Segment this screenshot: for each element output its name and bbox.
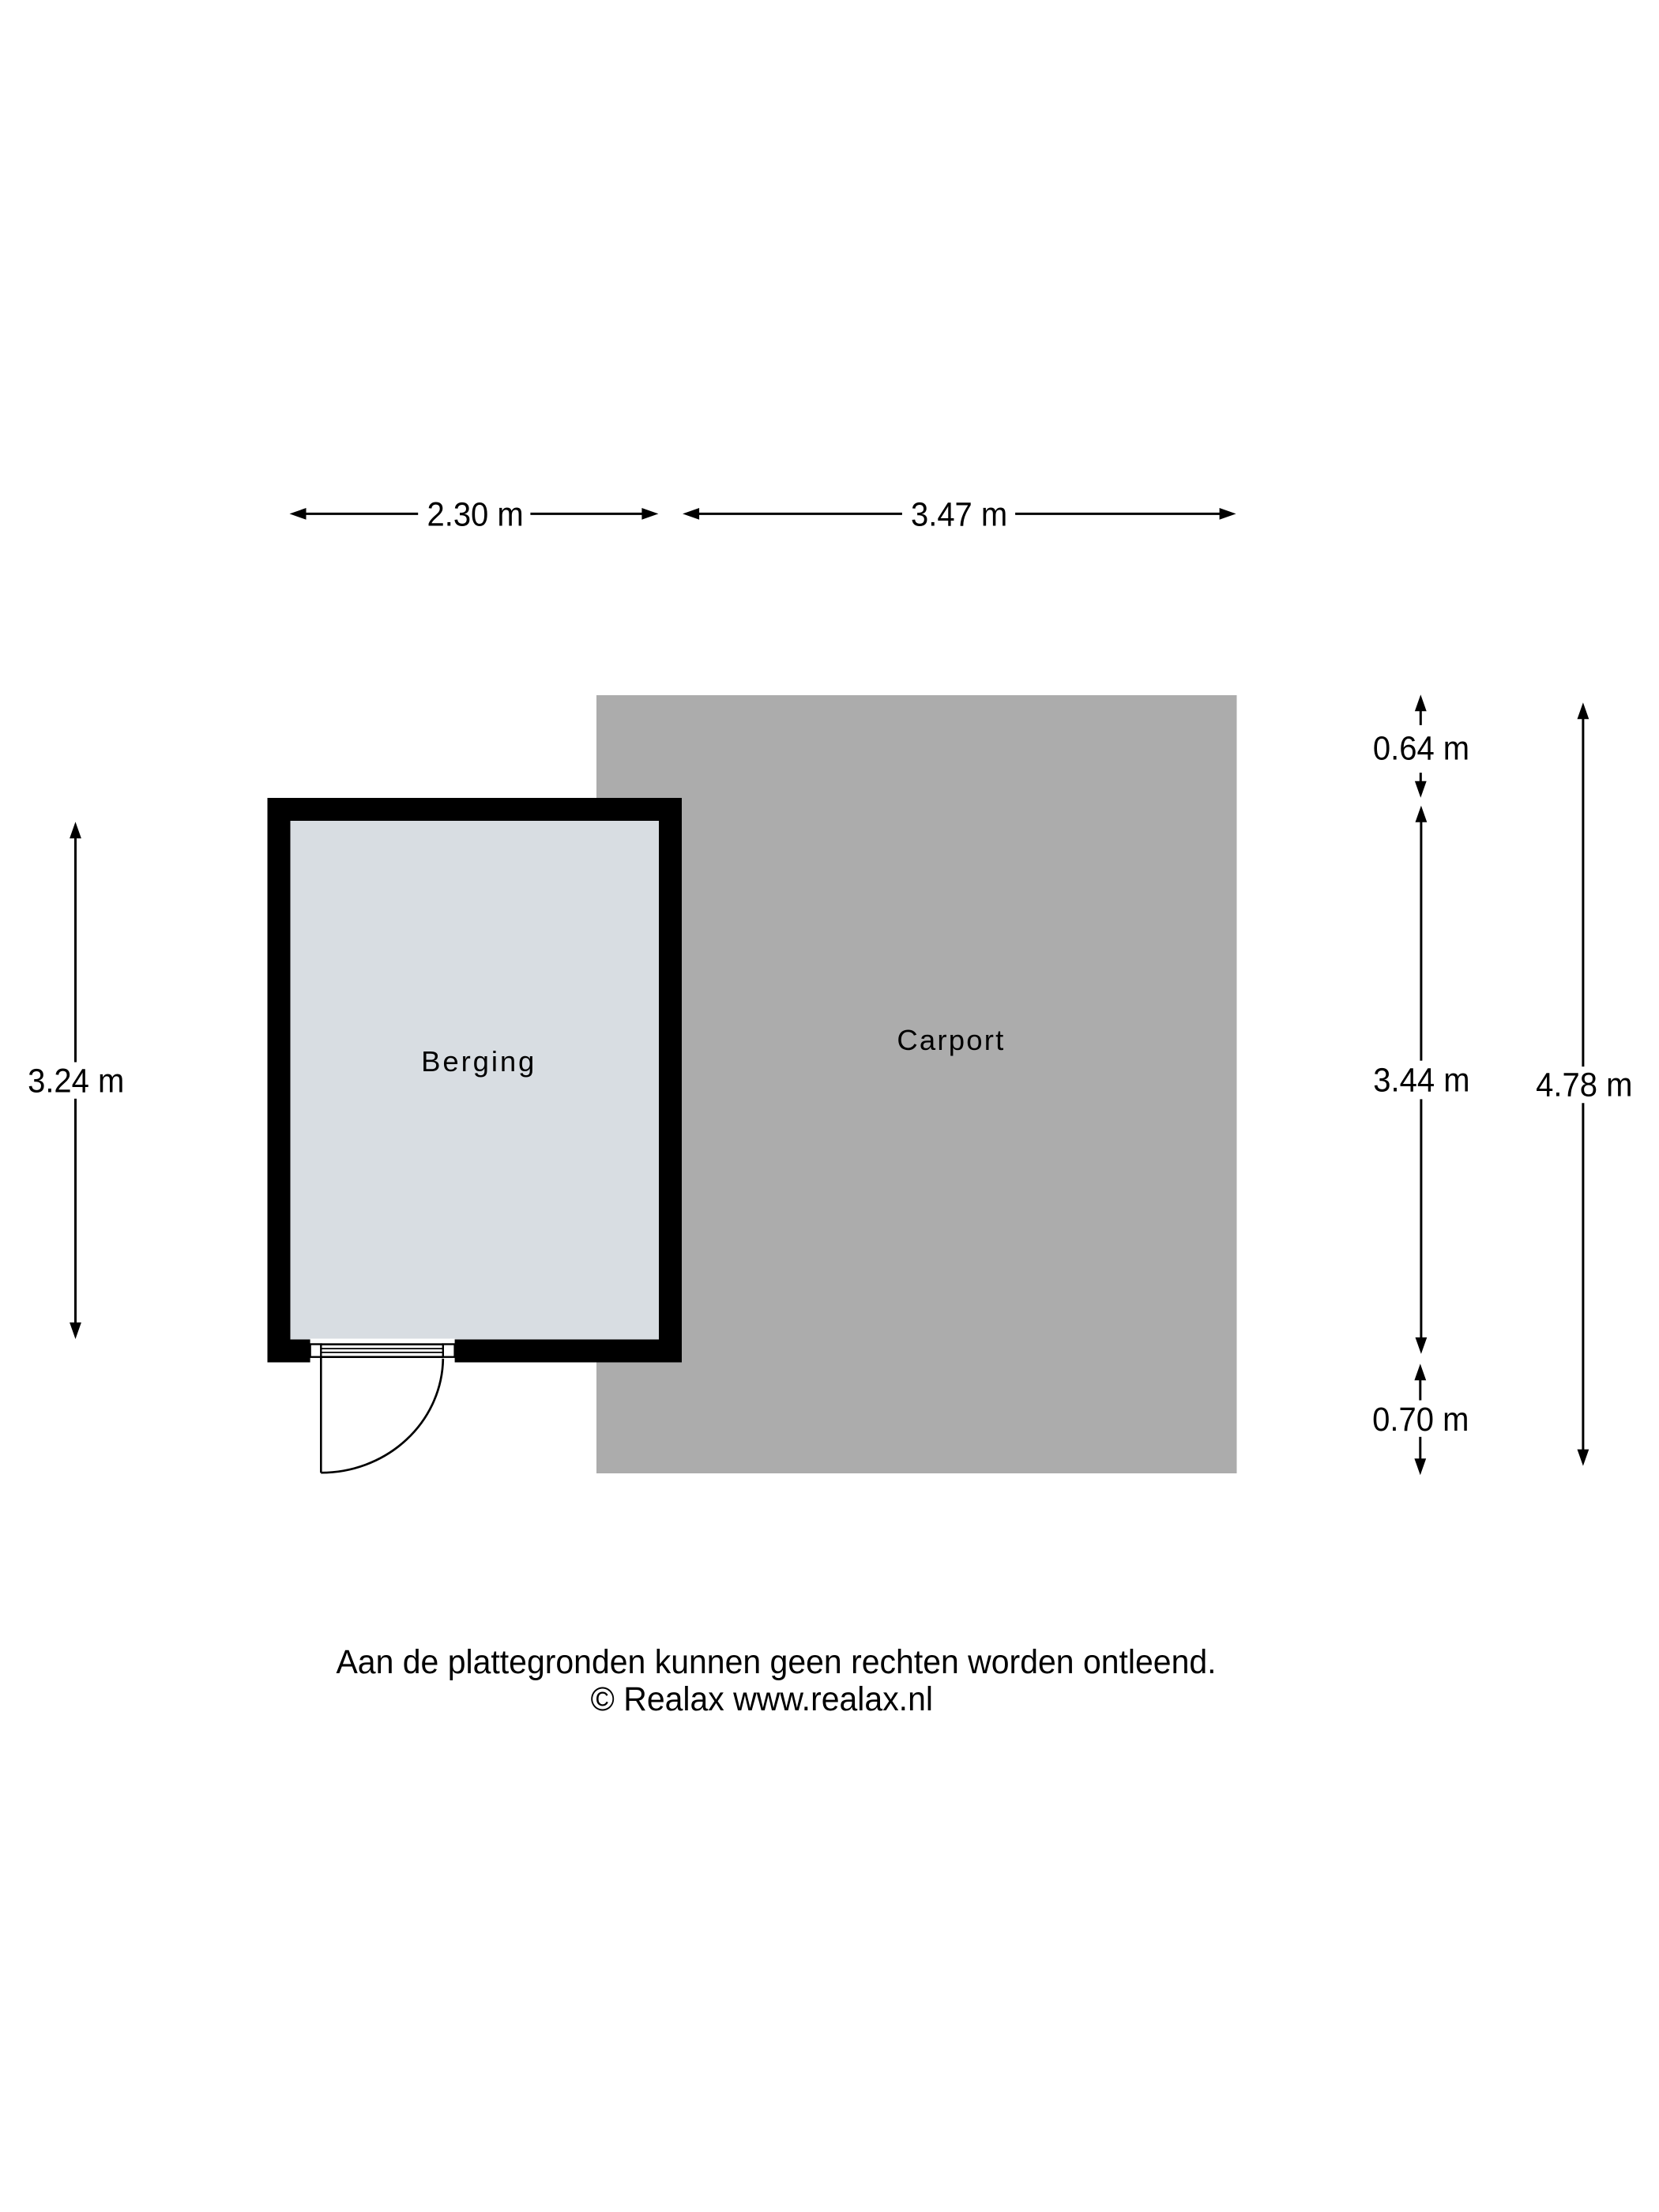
svg-text:2.30 m: 2.30 m xyxy=(427,495,523,533)
svg-text:Berging: Berging xyxy=(421,1045,536,1078)
svg-text:Carport: Carport xyxy=(897,1024,1005,1056)
svg-text:0.70 m: 0.70 m xyxy=(1372,1400,1469,1439)
svg-text:Aan de plattegronden kunnen ge: Aan de plattegronden kunnen geen rechten… xyxy=(336,1642,1216,1680)
svg-text:3.47 m: 3.47 m xyxy=(911,495,1007,533)
svg-text:0.64 m: 0.64 m xyxy=(1373,728,1469,767)
svg-text:© Realax www.realax.nl: © Realax www.realax.nl xyxy=(591,1680,933,1717)
svg-text:4.78 m: 4.78 m xyxy=(1536,1065,1632,1104)
svg-text:3.24 m: 3.24 m xyxy=(28,1061,124,1100)
svg-text:3.44 m: 3.44 m xyxy=(1373,1060,1469,1099)
